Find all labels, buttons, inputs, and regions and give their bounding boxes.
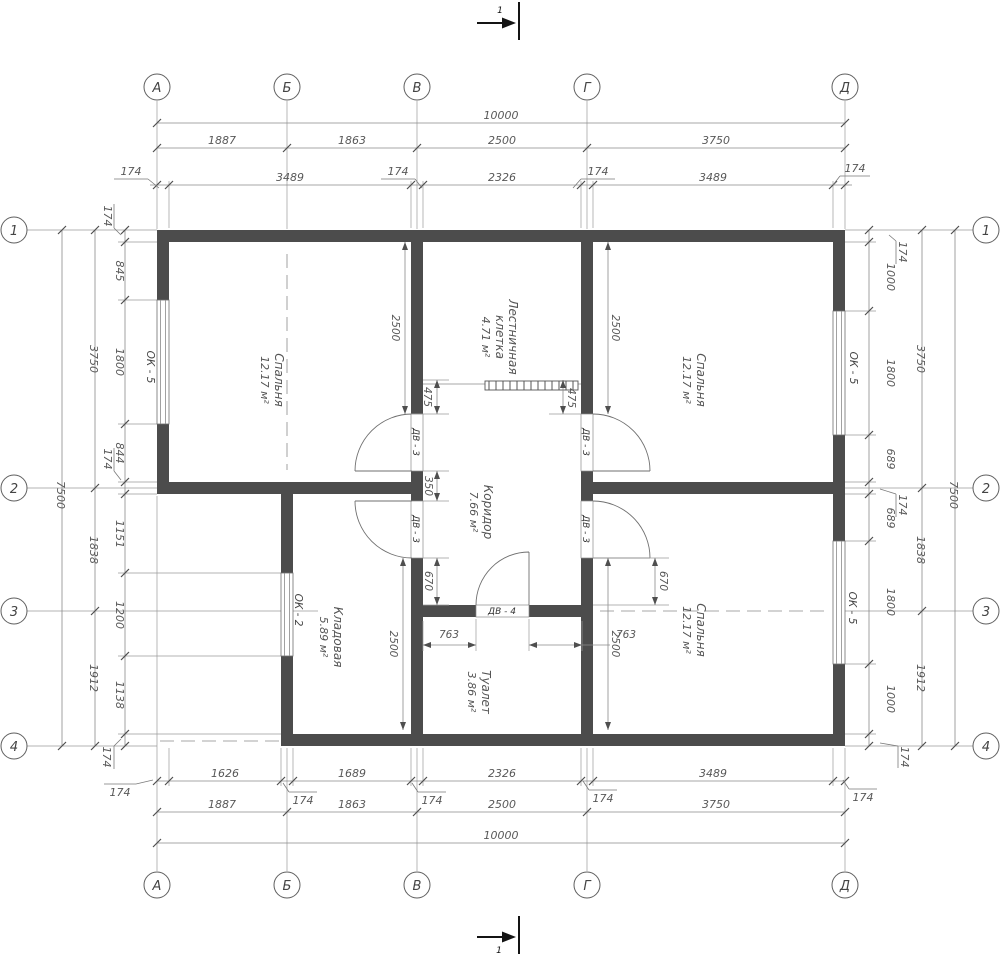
door-swing-br bbox=[593, 501, 650, 558]
label-window-ok2: ОК - 2 bbox=[292, 594, 304, 627]
svg-text:2500: 2500 bbox=[387, 631, 399, 658]
svg-text:Д: Д bbox=[839, 81, 850, 96]
svg-text:4.71 м²: 4.71 м² bbox=[479, 317, 492, 358]
svg-text:1138: 1138 bbox=[113, 681, 126, 709]
svg-text:1: 1 bbox=[496, 946, 502, 955]
floor-plan-drawing: А Б В Г Д А Б В Г Д 1 2 3 4 1 2 3 4 1000… bbox=[0, 0, 1000, 955]
svg-text:4: 4 bbox=[10, 740, 18, 755]
svg-text:475: 475 bbox=[565, 388, 577, 408]
wall-right-1 bbox=[833, 242, 845, 311]
label-door-dv3-br: ДВ - 3 bbox=[580, 514, 590, 543]
top-extension-lines bbox=[169, 181, 833, 228]
svg-text:7.66 м²: 7.66 м² bbox=[467, 492, 480, 533]
svg-text:3750: 3750 bbox=[702, 134, 730, 147]
svg-text:3750: 3750 bbox=[87, 345, 100, 373]
svg-text:1626: 1626 bbox=[211, 767, 239, 780]
label-window-ok5-br: ОК - 5 bbox=[846, 592, 858, 625]
svg-text:174: 174 bbox=[853, 791, 874, 804]
svg-text:7500: 7500 bbox=[947, 481, 960, 509]
room-label-toilet: Туалет 3.86 м² bbox=[465, 670, 493, 715]
wall-axisG-block bbox=[581, 471, 593, 501]
svg-text:Кладовая: Кладовая bbox=[331, 607, 345, 668]
svg-text:174: 174 bbox=[388, 165, 409, 178]
svg-text:Туалет: Туалет bbox=[479, 670, 493, 715]
svg-text:2500: 2500 bbox=[488, 798, 516, 811]
svg-text:А: А bbox=[152, 81, 162, 96]
walls bbox=[157, 230, 845, 746]
svg-text:В: В bbox=[413, 81, 422, 96]
wall-bottom bbox=[281, 734, 845, 746]
wall-toilet-left bbox=[411, 605, 476, 617]
room-label-bedroom-tl: Спальня 12.17 м² bbox=[258, 353, 286, 406]
svg-text:1887: 1887 bbox=[208, 134, 236, 147]
label-door-dv3-tr: ДВ - 3 bbox=[580, 427, 590, 456]
svg-text:2326: 2326 bbox=[488, 767, 516, 780]
svg-text:12.17 м²: 12.17 м² bbox=[680, 356, 693, 404]
svg-text:1800: 1800 bbox=[113, 348, 126, 376]
bottom-axis-stems bbox=[157, 496, 845, 871]
wall-axisG-bottom bbox=[581, 558, 593, 734]
svg-text:Д: Д bbox=[839, 879, 850, 894]
svg-text:174: 174 bbox=[101, 449, 114, 470]
svg-text:Б: Б bbox=[283, 81, 292, 96]
svg-text:2500: 2500 bbox=[389, 315, 401, 342]
section-mark-top: 1 bbox=[477, 2, 519, 40]
svg-text:174: 174 bbox=[593, 792, 614, 805]
svg-text:Г: Г bbox=[583, 81, 592, 96]
svg-text:1863: 1863 bbox=[338, 134, 366, 147]
svg-text:174: 174 bbox=[898, 747, 911, 768]
svg-text:Лестничная: Лестничная bbox=[506, 298, 520, 374]
svg-text:2500: 2500 bbox=[488, 134, 516, 147]
svg-text:2500: 2500 bbox=[609, 315, 621, 342]
svg-text:Спальня: Спальня bbox=[694, 603, 708, 656]
room-label-storage: Кладовая 5.89 м² bbox=[317, 607, 345, 668]
room-labels: Спальня 12.17 м² Лестничная клетка 4.71 … bbox=[258, 298, 708, 715]
svg-text:1838: 1838 bbox=[87, 536, 100, 564]
svg-text:3489: 3489 bbox=[699, 171, 727, 184]
label-door-dv3-tl: ДВ - 3 bbox=[410, 427, 420, 456]
svg-text:174: 174 bbox=[101, 206, 114, 227]
svg-text:670: 670 bbox=[657, 571, 669, 591]
door-swing-tl bbox=[355, 414, 412, 471]
stairs bbox=[423, 381, 581, 390]
wall-axis2-right bbox=[581, 482, 845, 494]
svg-text:763: 763 bbox=[616, 629, 636, 641]
wall-axis2-left bbox=[157, 482, 423, 494]
svg-text:1000: 1000 bbox=[884, 685, 897, 713]
svg-text:3.86 м²: 3.86 м² bbox=[465, 672, 478, 713]
svg-text:Б: Б bbox=[283, 879, 292, 894]
svg-text:1: 1 bbox=[497, 6, 503, 16]
door-swing-dv4 bbox=[476, 552, 529, 605]
wall-axisB-lower bbox=[281, 656, 293, 734]
svg-text:4: 4 bbox=[982, 740, 990, 755]
svg-text:1689: 1689 bbox=[338, 767, 366, 780]
svg-text:А: А bbox=[152, 879, 162, 894]
svg-text:3: 3 bbox=[982, 605, 990, 620]
svg-text:763: 763 bbox=[439, 629, 459, 641]
svg-text:689: 689 bbox=[884, 508, 897, 529]
svg-text:2: 2 bbox=[982, 482, 990, 497]
svg-text:1800: 1800 bbox=[884, 359, 897, 387]
wall-axisV-block bbox=[411, 471, 423, 501]
svg-text:3750: 3750 bbox=[914, 345, 927, 373]
svg-text:3489: 3489 bbox=[699, 767, 727, 780]
svg-text:1000: 1000 bbox=[884, 263, 897, 291]
svg-text:Спальня: Спальня bbox=[272, 353, 286, 406]
svg-text:1200: 1200 bbox=[113, 601, 126, 629]
wall-toilet-right bbox=[529, 605, 593, 617]
wall-axisB-upper bbox=[281, 494, 293, 573]
svg-text:7500: 7500 bbox=[54, 481, 67, 509]
svg-text:1800: 1800 bbox=[884, 588, 897, 616]
svg-text:3: 3 bbox=[10, 605, 18, 620]
doors bbox=[355, 414, 650, 617]
svg-text:1151: 1151 bbox=[113, 520, 126, 548]
svg-text:3489: 3489 bbox=[276, 171, 304, 184]
svg-text:1: 1 bbox=[10, 224, 18, 239]
svg-text:12.17 м²: 12.17 м² bbox=[258, 356, 271, 404]
svg-text:174: 174 bbox=[110, 786, 131, 799]
svg-text:5.89 м²: 5.89 м² bbox=[317, 617, 330, 658]
svg-text:Спальня: Спальня bbox=[694, 353, 708, 406]
wall-axisG-top bbox=[581, 242, 593, 414]
svg-text:Коридор: Коридор bbox=[481, 485, 495, 540]
window-ok5-bottom-right bbox=[833, 541, 845, 664]
room-label-corridor: Коридор 7.66 м² bbox=[467, 485, 495, 540]
svg-text:10000: 10000 bbox=[484, 109, 519, 122]
window-ok2 bbox=[281, 573, 293, 656]
label-door-dv3-storage: ДВ - 3 bbox=[410, 514, 420, 543]
wall-left-upper bbox=[157, 242, 169, 300]
svg-text:1863: 1863 bbox=[338, 798, 366, 811]
door-swing-storage bbox=[355, 501, 412, 558]
svg-text:В: В bbox=[413, 879, 422, 894]
svg-text:670: 670 bbox=[422, 571, 434, 591]
wall-top bbox=[157, 230, 845, 242]
svg-text:2: 2 bbox=[10, 482, 18, 497]
svg-text:12.17 м²: 12.17 м² bbox=[680, 606, 693, 654]
svg-text:2326: 2326 bbox=[488, 171, 516, 184]
svg-text:10000: 10000 bbox=[484, 829, 519, 842]
label-window-ok5-tr: ОК - 5 bbox=[847, 352, 859, 385]
svg-text:174: 174 bbox=[100, 747, 113, 768]
svg-text:350: 350 bbox=[422, 476, 434, 496]
svg-text:1887: 1887 bbox=[208, 798, 236, 811]
label-door-dv4: ДВ - 4 bbox=[487, 607, 516, 617]
door-swing-tr bbox=[593, 414, 650, 471]
svg-text:845: 845 bbox=[113, 261, 126, 282]
svg-text:3750: 3750 bbox=[702, 798, 730, 811]
svg-text:689: 689 bbox=[884, 449, 897, 470]
svg-text:174: 174 bbox=[845, 162, 866, 175]
floor-plan-svg: А Б В Г Д А Б В Г Д 1 2 3 4 1 2 3 4 1000… bbox=[0, 0, 1000, 955]
svg-text:174: 174 bbox=[588, 165, 609, 178]
svg-text:Г: Г bbox=[583, 879, 592, 894]
wall-right-3 bbox=[833, 664, 845, 734]
svg-text:1912: 1912 bbox=[87, 664, 100, 692]
svg-text:174: 174 bbox=[293, 794, 314, 807]
wall-axisV-bottom bbox=[411, 558, 423, 734]
svg-text:174: 174 bbox=[896, 242, 909, 263]
room-label-stair: Лестничная клетка 4.71 м² bbox=[479, 298, 520, 374]
svg-text:174: 174 bbox=[422, 794, 443, 807]
room-label-bedroom-tr: Спальня 12.17 м² bbox=[680, 353, 708, 406]
svg-text:174: 174 bbox=[121, 165, 142, 178]
label-window-ok5-tl: ОК - 5 bbox=[144, 351, 156, 384]
svg-text:клетка: клетка bbox=[493, 315, 507, 359]
svg-text:1: 1 bbox=[982, 224, 990, 239]
section-mark-bottom: 1 bbox=[477, 916, 519, 955]
dimension-texts: 10000 1887 1863 2500 3750 3489 2326 3489… bbox=[54, 109, 960, 842]
window-ok5-top-left bbox=[157, 300, 169, 424]
svg-text:1912: 1912 bbox=[914, 664, 927, 692]
window-ok5-top-right bbox=[833, 311, 845, 435]
svg-text:475: 475 bbox=[421, 387, 433, 407]
svg-text:1838: 1838 bbox=[914, 536, 927, 564]
